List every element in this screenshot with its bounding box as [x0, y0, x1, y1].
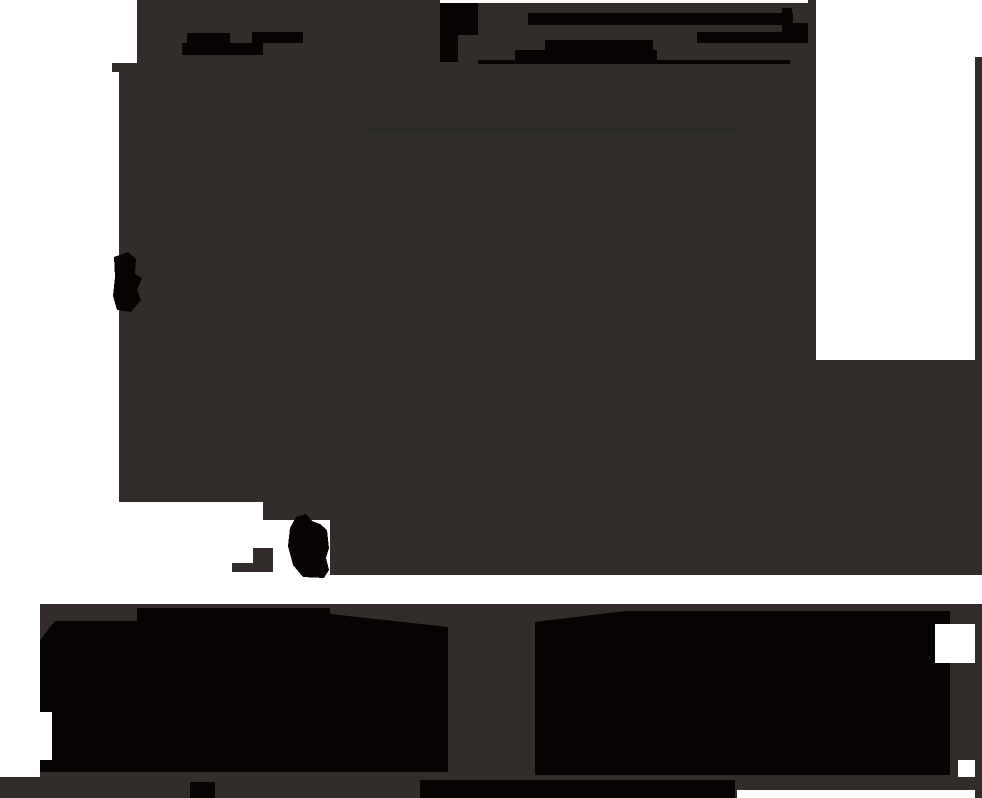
- right-smudge-bar-1: [782, 8, 792, 16]
- left-smudge-bar-1: [187, 33, 230, 43]
- left-smudge-bar-2: [252, 32, 303, 43]
- center-smudge-bar-2: [545, 40, 653, 50]
- center-smudge-thin-bar: [478, 60, 790, 64]
- dark-abstract-photo: [0, 0, 982, 798]
- black-bottom-notch: [190, 782, 215, 798]
- notch-gray-bar: [232, 563, 273, 572]
- white-bottom-strip: [737, 790, 975, 798]
- top-edge-white-sliver: [440, 0, 808, 3]
- white-notch-right-edge: [935, 624, 975, 663]
- right-smudge-bar-2: [782, 23, 808, 32]
- bottom-right-black-block: [535, 611, 950, 775]
- center-smudge-bar-1: [528, 13, 793, 25]
- center-smudge-block-1: [440, 3, 478, 35]
- right-smudge-bar-3: [697, 32, 808, 43]
- faint-horizontal-line: [367, 128, 737, 134]
- white-bottom-right-notch: [958, 760, 975, 777]
- bottom-left-black-block: [40, 608, 448, 772]
- center-smudge-block-2: [440, 35, 458, 62]
- white-slit-bottom-left: [40, 712, 52, 760]
- right-edge-strip: [975, 57, 982, 360]
- left-smudge-bar-3: [182, 43, 263, 55]
- screenshot-root: [0, 0, 982, 798]
- black-bottom-strip: [420, 780, 735, 798]
